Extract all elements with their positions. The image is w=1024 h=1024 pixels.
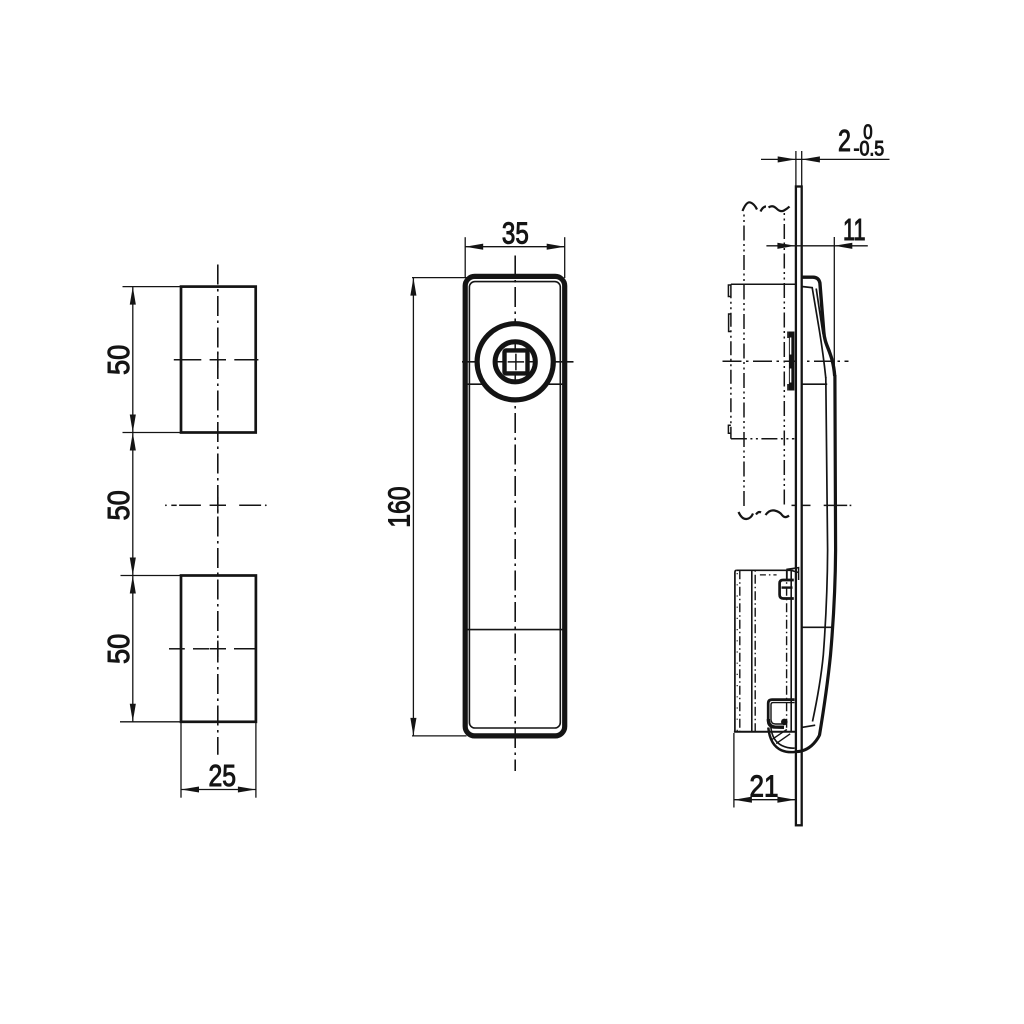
svg-text:50: 50 [103,345,137,375]
svg-text:25: 25 [209,758,237,792]
svg-text:2: 2 [838,123,851,158]
svg-text:50: 50 [103,634,137,664]
svg-text:160: 160 [382,486,416,527]
svg-text:-0.5: -0.5 [854,137,885,161]
svg-text:21: 21 [750,769,779,804]
svg-text:35: 35 [502,216,529,251]
svg-text:11: 11 [843,212,866,247]
svg-text:50: 50 [103,490,137,520]
